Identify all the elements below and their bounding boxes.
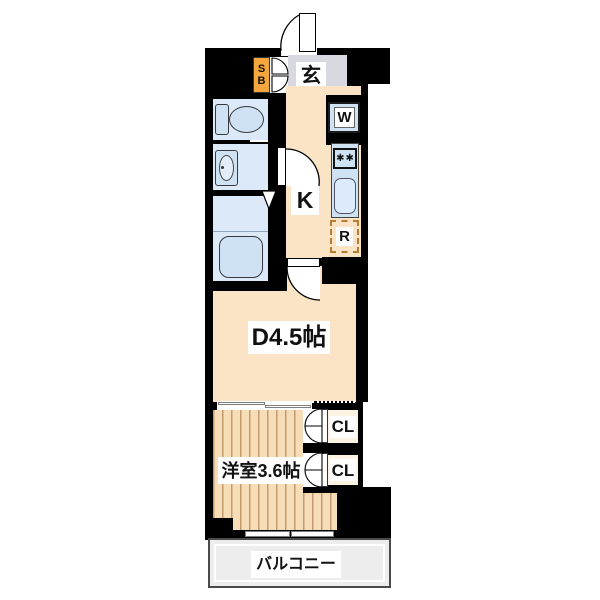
toilet-tank	[215, 104, 229, 135]
washer-label: W	[334, 107, 355, 128]
shoe-box-label-bottom: B	[258, 75, 266, 87]
toilet-door-gap	[250, 140, 268, 143]
closet-1: CL	[328, 410, 358, 443]
sliding-door-panel	[265, 405, 311, 408]
fridge-space: R	[330, 220, 359, 253]
closet-2-door-zone	[303, 453, 322, 487]
kitchen-sink	[334, 178, 356, 214]
room-western-extension	[303, 493, 337, 530]
shoe-box-label-top: S	[258, 63, 265, 75]
toilet-bowl-icon	[229, 106, 264, 133]
fridge-label: R	[336, 227, 353, 246]
closet-2: CL	[328, 455, 358, 485]
stove-burner-icon: ✱	[346, 153, 354, 164]
bathtub	[219, 236, 263, 278]
wall-kitchen-dining	[322, 257, 368, 284]
washbasin-faucet-dot	[221, 166, 224, 169]
entrance-door-leaf	[299, 13, 316, 52]
stove: ✱ ✱	[333, 148, 357, 169]
balcony: バルコニー	[208, 538, 391, 588]
dining-label: D4.5帖	[248, 321, 330, 354]
bathroom-deck-line	[213, 231, 268, 232]
washroom-door-leaf	[277, 147, 286, 186]
shoe-box: S B	[253, 57, 270, 93]
closet-2-door-panel	[321, 453, 328, 487]
closet-2-label: CL	[330, 459, 356, 481]
closet-1-label: CL	[330, 416, 356, 438]
wall-bottom-right-block	[363, 487, 391, 540]
kitchen-label: K	[291, 185, 319, 215]
stove-burner-icon: ✱	[336, 153, 344, 164]
sliding-door-dining-west	[217, 401, 312, 410]
wall-western-corner	[213, 518, 233, 530]
closet-1-door-zone	[303, 409, 322, 443]
balcony-sliding-panel	[291, 531, 334, 537]
washer-unit: W	[328, 102, 360, 133]
sliding-door-panel	[218, 402, 265, 405]
balcony-sliding-panel	[245, 531, 290, 537]
balcony-label: バルコニー	[251, 551, 341, 578]
floorplan-canvas: S B 玄 W ✱ ✱ R K D4.5帖 洋室3.6帖	[0, 0, 600, 600]
dining-door-leaf	[287, 258, 320, 267]
wall-open-section	[312, 401, 355, 408]
closet-1-door-panel	[321, 409, 328, 443]
western-room-label: 洋室3.6帖	[218, 457, 304, 484]
entrance-label: 玄	[296, 62, 326, 89]
